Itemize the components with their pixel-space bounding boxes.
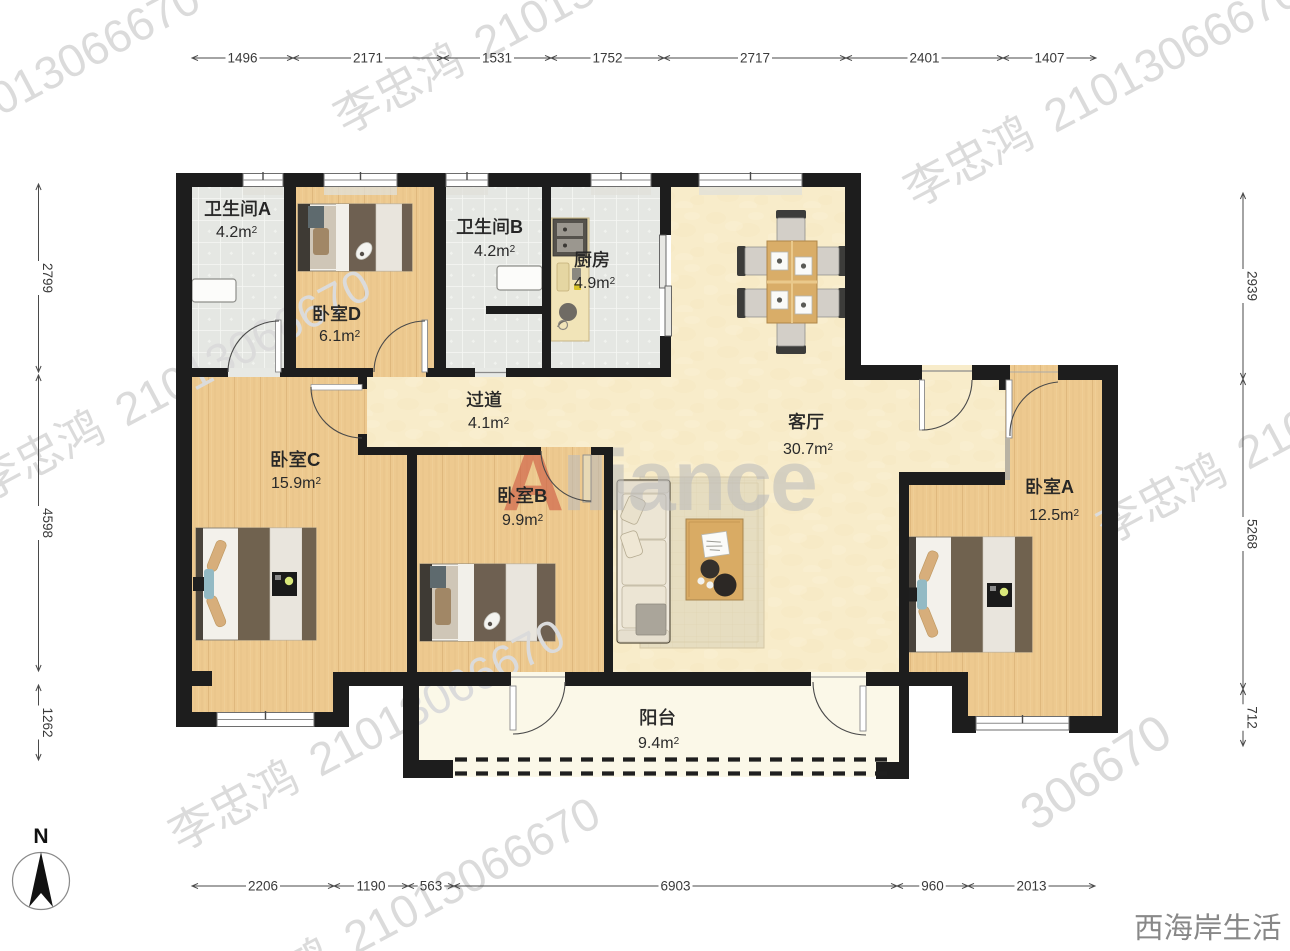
- svg-text:4.9m2: 4.9m2: [574, 275, 616, 292]
- svg-text:1531: 1531: [482, 51, 512, 66]
- svg-text:2939: 2939: [1245, 271, 1260, 301]
- svg-text:2717: 2717: [740, 51, 770, 66]
- svg-text:2206: 2206: [248, 879, 278, 894]
- svg-text:2799: 2799: [40, 263, 55, 293]
- svg-text:1407: 1407: [1034, 51, 1064, 66]
- svg-text:2401: 2401: [909, 51, 939, 66]
- svg-text:4.1m2: 4.1m2: [468, 415, 510, 432]
- svg-text:B: B: [510, 217, 523, 237]
- svg-text:A: A: [258, 199, 271, 219]
- svg-text:30.7m2: 30.7m2: [783, 441, 833, 458]
- svg-text:D: D: [348, 304, 361, 324]
- svg-text:712: 712: [1245, 706, 1260, 729]
- svg-text:B: B: [534, 485, 547, 506]
- svg-text:563: 563: [420, 879, 443, 894]
- svg-text:9.9m2: 9.9m2: [502, 512, 544, 529]
- svg-text:6903: 6903: [660, 879, 690, 894]
- svg-text:1496: 1496: [227, 51, 257, 66]
- svg-text:12.5m2: 12.5m2: [1029, 507, 1079, 524]
- svg-text:4.2m2: 4.2m2: [474, 243, 516, 260]
- svg-text:1752: 1752: [592, 51, 622, 66]
- svg-text:C: C: [307, 449, 320, 470]
- svg-text:1190: 1190: [356, 879, 385, 894]
- svg-text:N: N: [33, 825, 48, 848]
- svg-text:2171: 2171: [353, 51, 383, 66]
- svg-text:15.9m2: 15.9m2: [271, 475, 321, 492]
- svg-text:6.1m2: 6.1m2: [319, 328, 361, 345]
- svg-text:4.2m2: 4.2m2: [216, 224, 258, 241]
- svg-text:A: A: [1061, 477, 1074, 497]
- svg-text:1262: 1262: [40, 707, 55, 737]
- svg-text:5268: 5268: [1245, 519, 1260, 549]
- svg-text:9.4m2: 9.4m2: [638, 735, 680, 752]
- svg-text:960: 960: [921, 879, 944, 894]
- svg-text:4598: 4598: [40, 508, 55, 538]
- svg-text:2013: 2013: [1016, 879, 1046, 894]
